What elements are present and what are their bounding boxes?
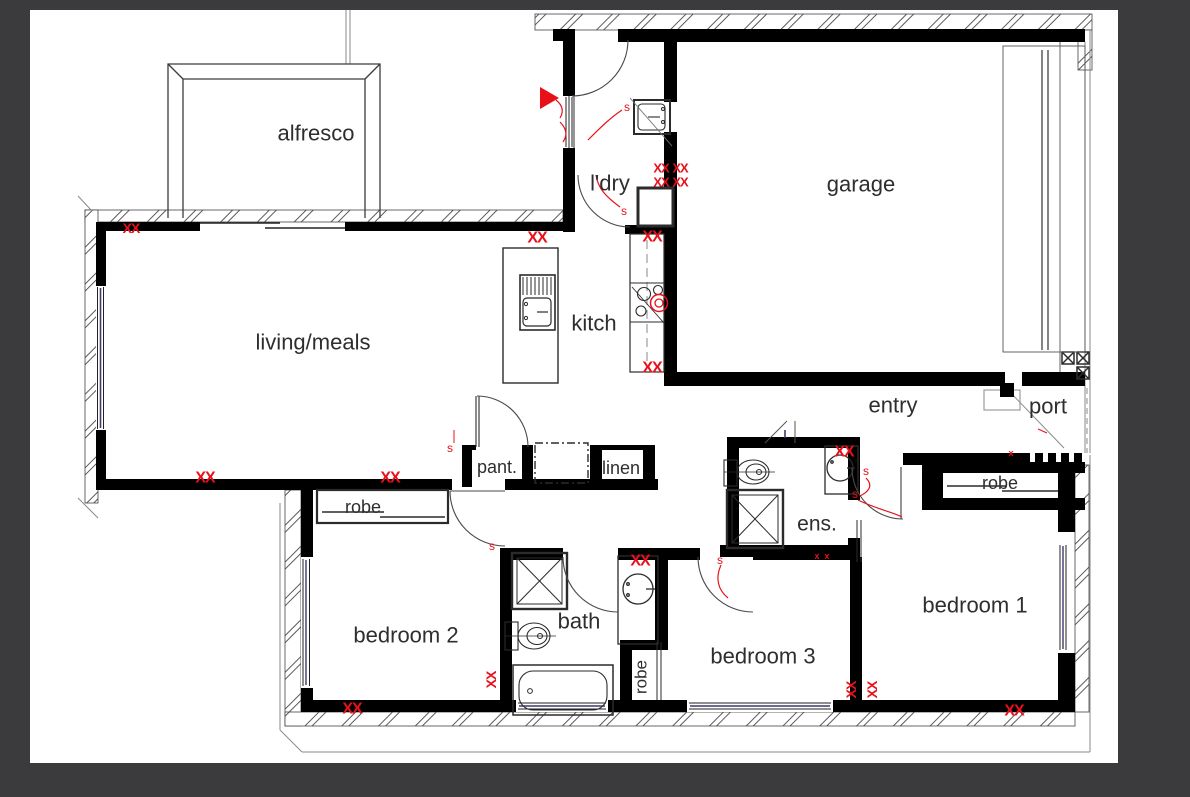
room-label-garage: garage	[827, 172, 896, 197]
room-label-bedroom3: bedroom 3	[710, 644, 815, 669]
floorplan-svg: XXXXXXXXXXXXXXXXXXXXXXXXXXXXXXXXXXssssss…	[0, 0, 1190, 797]
room-label-robe-bedroom1: robe	[982, 473, 1018, 493]
room-label-robe-bedroom2: robe	[345, 497, 381, 517]
room-label-port: port	[1029, 394, 1067, 419]
room-label-bedroom1: bedroom 1	[922, 593, 1027, 618]
room-label-pantry: pant.	[477, 457, 517, 477]
s-marker: s	[863, 464, 869, 478]
room-label-bedroom2: bedroom 2	[353, 623, 458, 648]
room-label-linen: linen	[602, 458, 640, 478]
xx-marker: XX	[380, 470, 401, 487]
xx-marker: XX	[843, 680, 859, 698]
s-marker: s	[447, 441, 453, 455]
xx-marker: XX	[834, 444, 855, 461]
room-label-living-meals: living/meals	[256, 330, 371, 355]
xx-marker: XX	[483, 670, 499, 688]
xx-marker: XX	[342, 701, 363, 718]
xx-marker: XX	[630, 553, 651, 570]
xx-marker: XX	[672, 161, 689, 176]
xx-marker: XX	[864, 680, 880, 698]
xx-marker: XX	[653, 175, 670, 190]
room-label-laundry: l'dry	[590, 171, 630, 196]
xx-marker: XX	[672, 175, 689, 190]
room-label-bath: bath	[558, 609, 601, 634]
s-marker: s	[717, 553, 723, 567]
robe-bedroom2-unit	[317, 490, 448, 523]
floorplan-screenshot: XXXXXXXXXXXXXXXXXXXXXXXXXXXXXXXXXXssssss…	[0, 0, 1190, 797]
xx-marker: XX	[527, 230, 548, 247]
s-marker: s	[624, 100, 630, 114]
xx-marker: XX	[642, 229, 663, 246]
room-label-ensuite: ens.	[797, 513, 837, 536]
xx-marker: XX	[123, 220, 141, 236]
xx-marker: XX	[1004, 703, 1025, 720]
room-label-kitchen: kitch	[571, 311, 616, 336]
room-label-alfresco: alfresco	[277, 121, 354, 146]
xx-marker: XX	[653, 161, 670, 176]
small-x-marker: x	[1008, 448, 1013, 458]
xx-marker: XX	[195, 470, 216, 487]
kitchen-island-bench	[503, 248, 558, 383]
s-marker: s	[852, 487, 858, 501]
small-x-marker: x	[814, 551, 819, 561]
xx-marker: XX	[642, 360, 663, 377]
room-label-entry: entry	[869, 393, 918, 418]
s-marker: s	[621, 204, 627, 218]
room-label-robe-bath: robe	[632, 660, 651, 694]
laundry-cupboard	[638, 188, 673, 226]
s-marker: s	[489, 539, 495, 553]
kitchen-cooktop-bench	[630, 234, 664, 372]
small-x-marker: x	[824, 551, 829, 561]
